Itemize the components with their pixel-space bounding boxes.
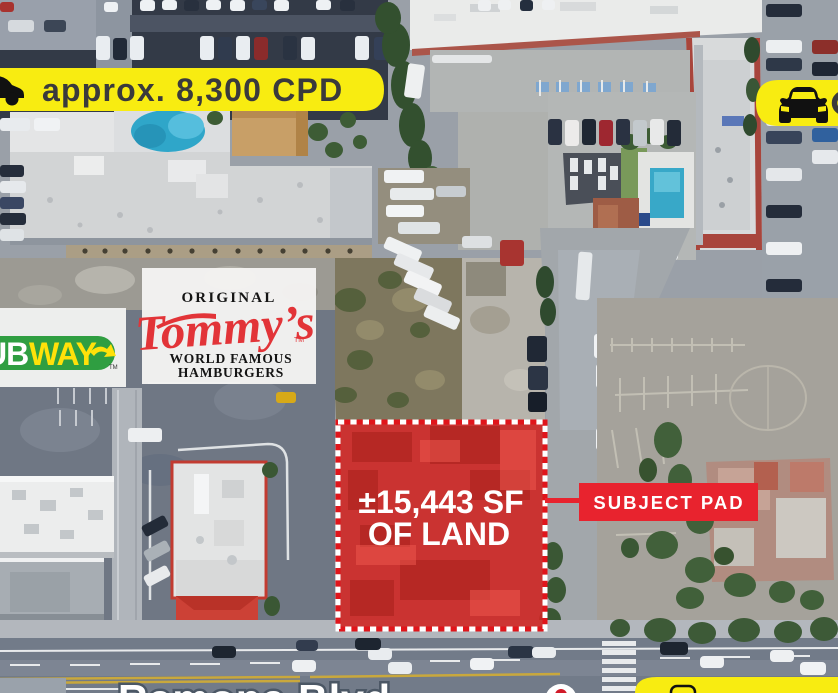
svg-text:Ramona Blvd: Ramona Blvd <box>118 676 391 693</box>
svg-text:TM: TM <box>294 337 304 344</box>
svg-text:UB: UB <box>0 336 28 372</box>
svg-text:approx. 8,300 CPD: approx. 8,300 CPD <box>42 72 343 108</box>
svg-text:WAY: WAY <box>29 336 97 372</box>
svg-text:WORLD FAMOUS: WORLD FAMOUS <box>170 351 293 366</box>
svg-text:OF LAND: OF LAND <box>368 516 510 552</box>
svg-text:SUBJECT PAD: SUBJECT PAD <box>593 492 744 513</box>
svg-text:TM: TM <box>109 365 118 371</box>
svg-text:±15,443 SF: ±15,443 SF <box>358 484 523 520</box>
svg-text:HAMBURGERS: HAMBURGERS <box>178 365 284 380</box>
